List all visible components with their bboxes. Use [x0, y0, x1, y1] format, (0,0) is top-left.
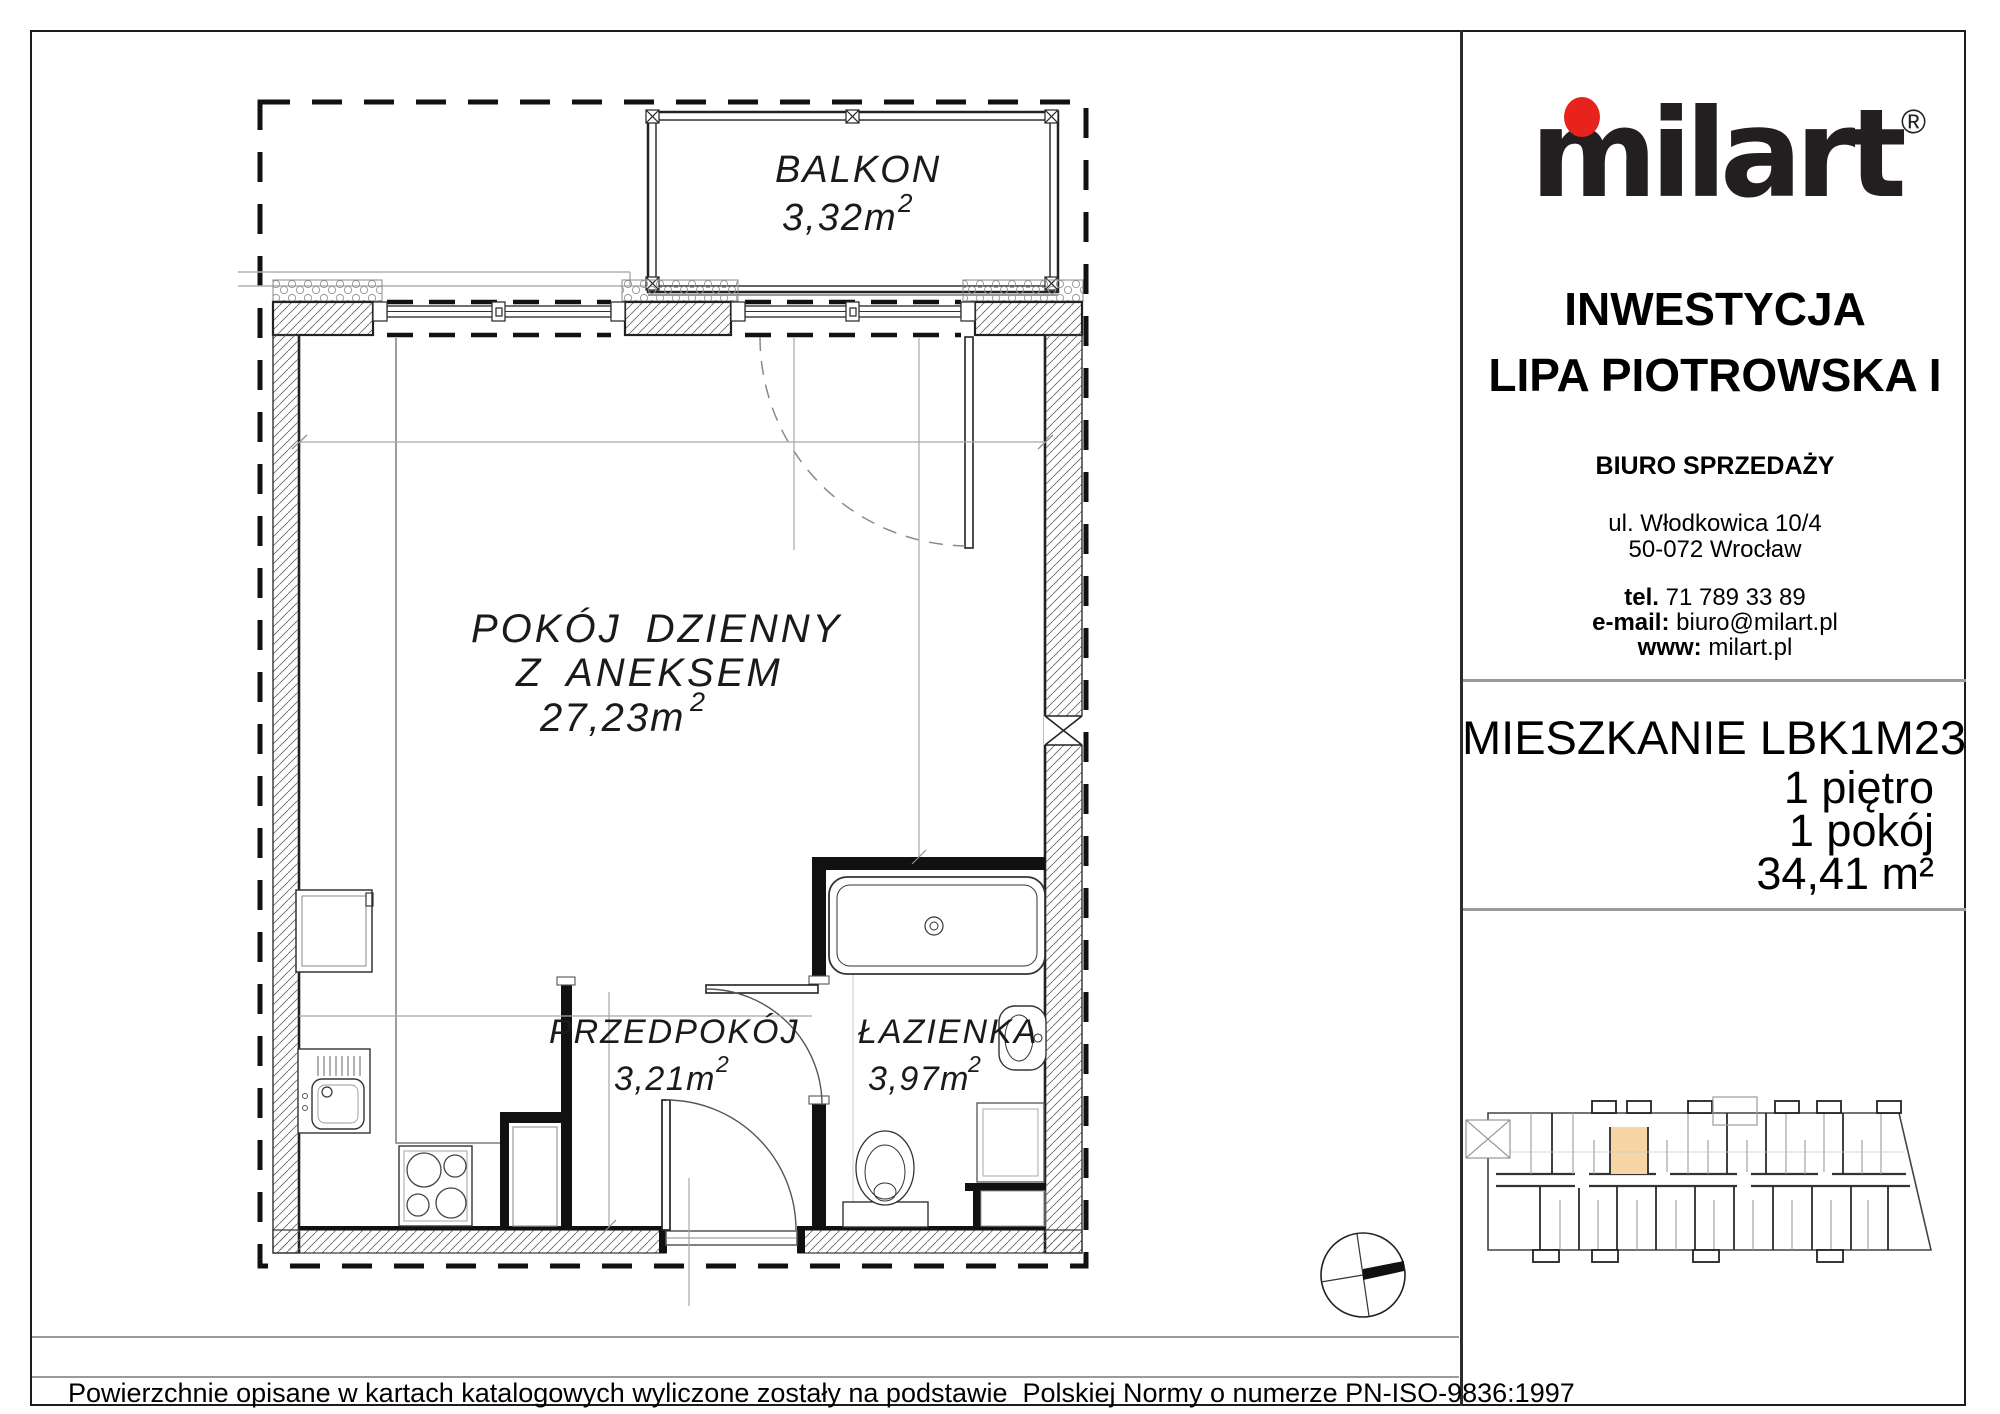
annex-shed: [1466, 1120, 1510, 1158]
norm-note-strip: Powierzchnie opisane w kartach katalogow…: [32, 1336, 1459, 1378]
norm-note-text: Powierzchnie opisane w kartach katalogow…: [68, 1378, 1575, 1408]
building-overview-map: [0, 0, 2000, 1414]
catalog-card-sheet: BALKON 3,32m 2 POKÓJ DZIENNY Z ANEKSEM 2…: [0, 0, 2000, 1414]
balcony-marks-bottom: [1533, 1250, 1843, 1262]
highlighted-unit: [1610, 1127, 1648, 1174]
building-outline: [1466, 1097, 1931, 1262]
balcony-marks-top: [1592, 1101, 1901, 1113]
